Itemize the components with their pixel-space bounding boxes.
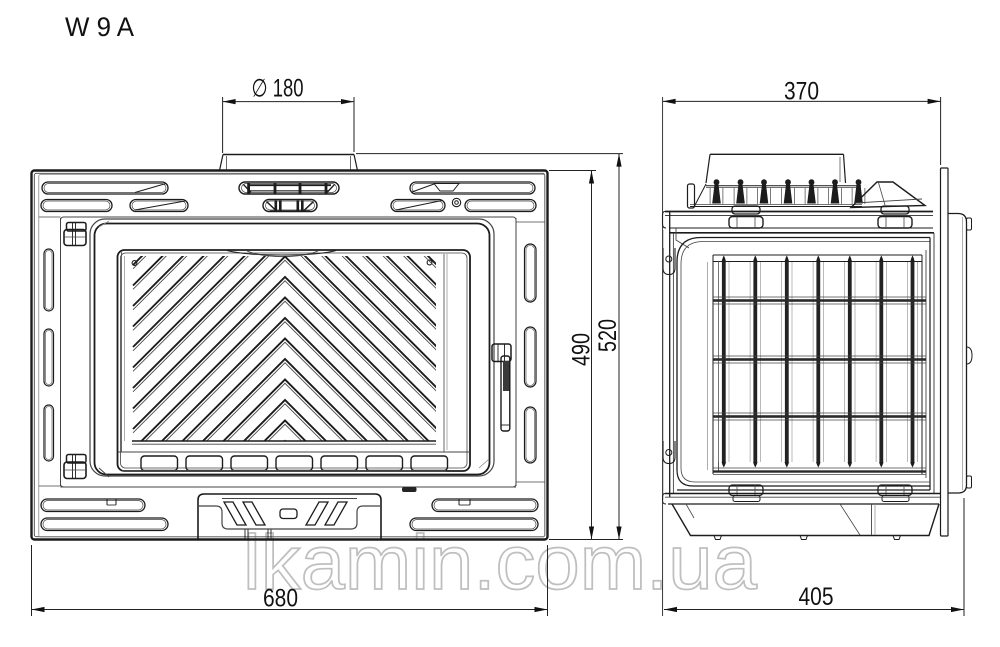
svg-text:∅ 180: ∅ 180 (252, 75, 304, 103)
svg-text:W 9 A: W 9 A (65, 12, 134, 42)
svg-text:405: 405 (799, 583, 834, 611)
svg-text:680: 680 (263, 585, 298, 613)
svg-text:lkamin.com.ua: lkamin.com.ua (243, 520, 757, 606)
svg-text:370: 370 (784, 77, 819, 105)
svg-text:490: 490 (568, 333, 596, 366)
svg-text:520: 520 (594, 319, 622, 352)
